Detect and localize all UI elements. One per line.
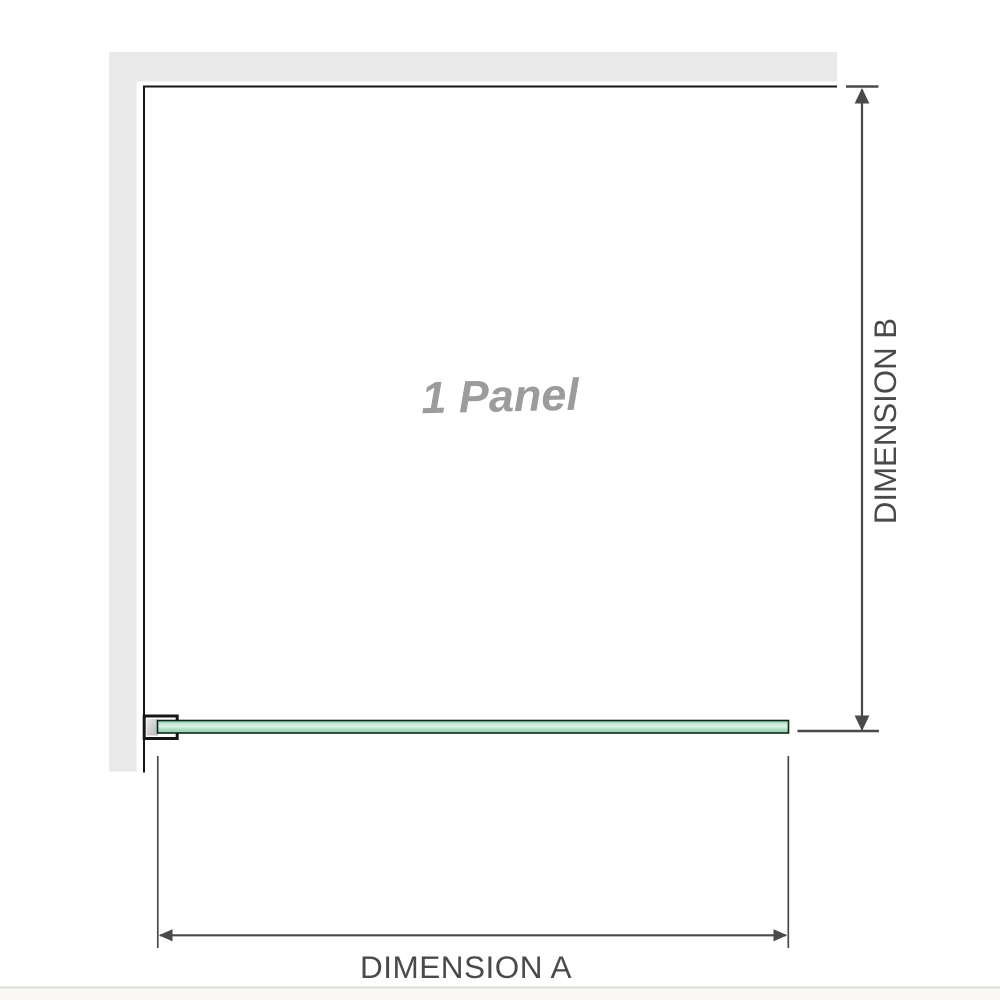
- svg-text:DIMENSION B: DIMENSION B: [868, 318, 903, 524]
- svg-text:1 Panel: 1 Panel: [421, 369, 581, 424]
- svg-text:DIMENSION A: DIMENSION A: [360, 949, 572, 985]
